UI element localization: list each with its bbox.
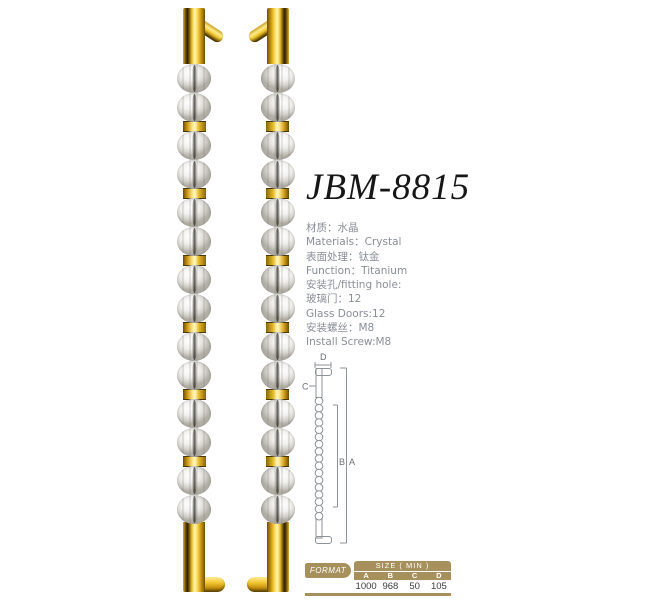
spec-material-cn: 材质：水晶	[306, 221, 476, 235]
crystal-bead	[261, 294, 295, 323]
diagram-bead	[315, 412, 323, 420]
profile-top-leg	[316, 369, 332, 376]
product-model-title: JBM-8815	[306, 168, 470, 208]
crystal-bead	[177, 399, 211, 428]
dim-label-c: C	[302, 382, 309, 392]
handle-bottom-tube	[183, 522, 205, 592]
crystal-bead	[261, 495, 295, 524]
handle-top-tube	[267, 8, 289, 64]
crystal-bead	[177, 198, 211, 227]
handle-top-tube	[183, 8, 205, 64]
spec-install-screw-en: Install Screw:M8	[306, 335, 476, 349]
dim-a-line	[340, 368, 347, 543]
diagram-bead	[315, 419, 323, 427]
crystal-bead	[177, 265, 211, 294]
diagram-bead	[315, 505, 323, 513]
spec-glass-door-en: Glass Doors:12	[306, 307, 476, 321]
diagram-bead	[315, 448, 323, 456]
spec-install-screw-cn: 安装螺丝：M8	[306, 321, 476, 335]
dim-d-bracket	[315, 362, 331, 368]
crystal-bead	[261, 227, 295, 256]
crystal-bead	[261, 332, 295, 361]
crystal-bead	[261, 265, 295, 294]
spec-fitting-hole: 安装孔/fitting hole:	[306, 278, 476, 292]
col-header-d: D	[427, 572, 451, 580]
diagram-bead	[315, 426, 323, 434]
size-table: FORMAT SIZE ( MIN ) A B C D 1000 968 50 …	[305, 561, 451, 597]
handle-bottom-tube	[267, 522, 289, 592]
size-table-column-headers: A B C D	[354, 572, 451, 580]
size-table-format-cell: FORMAT	[305, 563, 351, 578]
dim-label-b: B	[339, 457, 345, 467]
crystal-bead	[177, 428, 211, 457]
crystal-bead	[177, 466, 211, 495]
profile-bead-chain	[315, 397, 323, 520]
spec-material-en: Materials：Crystal	[306, 235, 476, 249]
dim-label-d: D	[320, 352, 327, 362]
diagram-bead	[315, 397, 323, 405]
crystal-bead	[177, 332, 211, 361]
value-b: 968	[378, 580, 402, 593]
crystal-bead	[261, 466, 295, 495]
crystal-bead	[261, 131, 295, 160]
diagram-bead	[315, 440, 323, 448]
crystal-bead	[261, 160, 295, 189]
crystal-bead	[177, 64, 211, 93]
crystal-bead	[177, 495, 211, 524]
diagram-bead	[315, 433, 323, 441]
spec-finish-cn: 表面处理：钛金	[306, 250, 476, 264]
value-d: 105	[427, 580, 451, 593]
spec-glass-door-cn: 玻璃门：12	[306, 292, 476, 306]
crystal-bead	[177, 227, 211, 256]
crystal-bead-chain	[261, 64, 295, 524]
crystal-bead	[177, 361, 211, 390]
size-table-bottom-rule	[305, 593, 451, 596]
crystal-bead	[261, 198, 295, 227]
value-c: 50	[403, 580, 427, 593]
handle-photo-right	[261, 8, 295, 592]
crystal-bead	[177, 160, 211, 189]
diagram-bead	[315, 512, 323, 520]
crystal-bead	[177, 93, 211, 122]
dim-b-line	[333, 405, 338, 507]
value-a: 1000	[354, 580, 378, 593]
crystal-bead	[261, 64, 295, 93]
diagram-bead	[315, 484, 323, 492]
diagram-bead	[315, 404, 323, 412]
profile-top-neck	[316, 369, 322, 398]
diagram-bead	[315, 498, 323, 506]
spec-finish-en: Function：Titanium	[306, 264, 476, 278]
col-header-a: A	[354, 572, 378, 580]
col-header-b: B	[378, 572, 402, 580]
diagram-bead	[315, 469, 323, 477]
diagram-bead	[315, 491, 323, 499]
crystal-bead-chain	[177, 64, 211, 524]
crystal-bead	[261, 93, 295, 122]
handle-photo-left	[177, 8, 211, 592]
crystal-bead	[261, 399, 295, 428]
diagram-bead	[315, 462, 323, 470]
dim-label-a: A	[349, 457, 355, 467]
technical-diagram: D C B A	[300, 352, 370, 552]
diagram-bead	[315, 476, 323, 484]
size-table-size-header: SIZE ( MIN )	[354, 561, 451, 571]
spec-list: 材质：水晶 Materials：Crystal 表面处理：钛金 Function…	[306, 221, 476, 350]
size-table-values-row: 1000 968 50 105	[354, 580, 451, 593]
catalog-page: JBM-8815 材质：水晶 Materials：Crystal 表面处理：钛金…	[0, 0, 650, 600]
crystal-bead	[177, 294, 211, 323]
crystal-bead	[177, 131, 211, 160]
col-header-c: C	[403, 572, 427, 580]
diagram-bead	[315, 455, 323, 463]
crystal-bead	[261, 361, 295, 390]
crystal-bead	[261, 428, 295, 457]
